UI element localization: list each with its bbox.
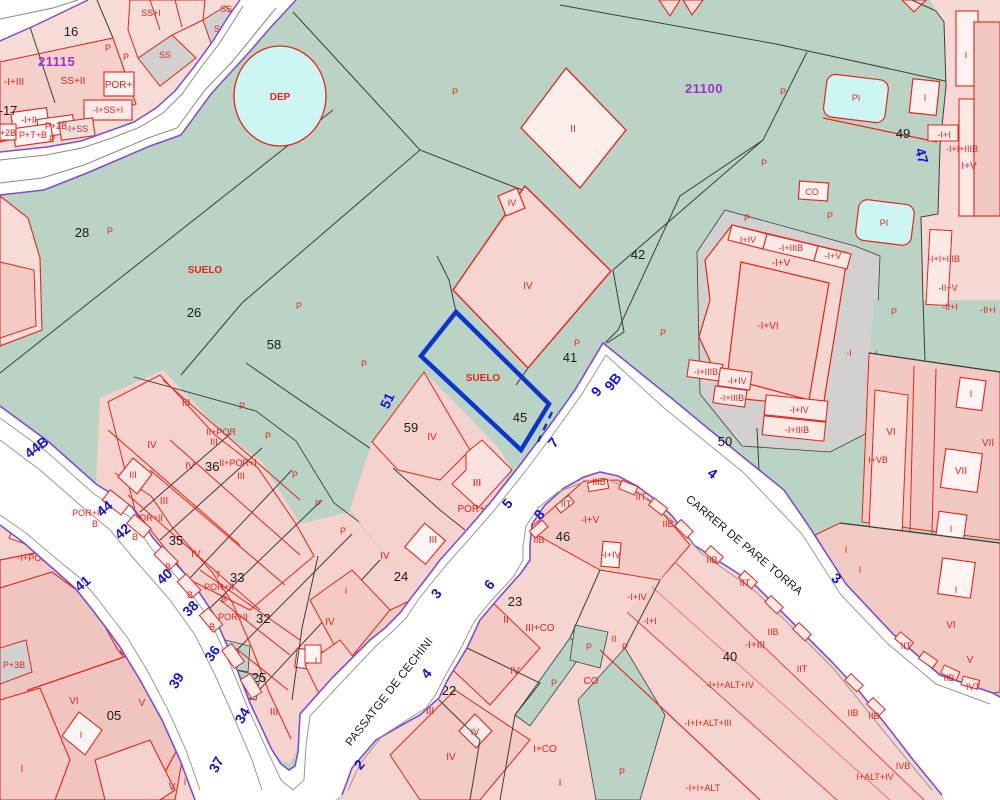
- svg-text:P: P: [315, 499, 321, 509]
- svg-text:III: III: [237, 471, 245, 481]
- svg-text:58: 58: [267, 337, 281, 352]
- svg-text:-I+SS+I: -I+SS+I: [93, 105, 124, 115]
- svg-text:I: I: [345, 586, 348, 596]
- svg-text:I: I: [845, 545, 848, 555]
- svg-text:P: P: [891, 307, 897, 317]
- svg-text:III: III: [473, 478, 481, 489]
- svg-text:VII: VII: [982, 438, 994, 449]
- svg-text:IV: IV: [380, 551, 390, 562]
- svg-text:VI: VI: [946, 620, 955, 631]
- svg-text:SS+I: SS+I: [141, 8, 161, 18]
- svg-text:-I+III: -I+III: [745, 640, 765, 651]
- svg-text:V: V: [139, 698, 146, 709]
- svg-text:IIB: IIB: [533, 535, 544, 545]
- svg-text:II: II: [611, 634, 616, 644]
- svg-text:CO: CO: [805, 187, 819, 197]
- svg-text:P: P: [660, 328, 666, 338]
- svg-text:-I+V: -I+V: [825, 251, 842, 261]
- svg-text:I: I: [924, 93, 927, 103]
- svg-text:P: P: [622, 642, 628, 652]
- svg-text:CO: CO: [584, 676, 599, 687]
- svg-text:24: 24: [394, 569, 408, 584]
- svg-text:IVT: IVT: [966, 682, 981, 692]
- svg-text:P+2B: P+2B: [45, 121, 67, 131]
- svg-text:P: P: [574, 338, 580, 348]
- svg-text:50: 50: [718, 434, 732, 449]
- svg-text:IIB: IIB: [868, 711, 879, 721]
- svg-text:P: P: [107, 226, 113, 236]
- svg-text:PI: PI: [880, 218, 889, 228]
- svg-text:IV: IV: [508, 198, 517, 208]
- svg-text:45: 45: [513, 410, 527, 425]
- svg-text:B: B: [92, 519, 98, 529]
- svg-text:P: P: [296, 301, 302, 311]
- svg-text:I: I: [950, 524, 953, 534]
- svg-text:P: P: [452, 87, 458, 97]
- svg-text:I+CO: I+CO: [533, 744, 557, 755]
- svg-text:42: 42: [631, 247, 645, 262]
- svg-text:II+POR: II+POR: [206, 427, 236, 437]
- svg-text:-I+I: -I+I: [643, 616, 656, 626]
- svg-text:-I+I+ALT: -I+I+ALT: [686, 783, 721, 793]
- svg-text:IIB: IIB: [943, 673, 954, 683]
- svg-text:IV: IV: [523, 281, 533, 292]
- svg-text:05: 05: [107, 708, 121, 723]
- svg-text:VI: VI: [69, 696, 78, 707]
- svg-text:I: I: [559, 778, 562, 789]
- svg-text:-I+I+ALT+III: -I+I+ALT+III: [684, 718, 731, 728]
- svg-text:-II+I: -II+I: [942, 302, 958, 312]
- svg-text:IV: IV: [185, 461, 195, 472]
- svg-text:P: P: [780, 87, 786, 97]
- svg-text:-I+IIIB: -I+IIIB: [779, 243, 803, 253]
- svg-text:I+ALT+IV: I+ALT+IV: [856, 772, 893, 782]
- svg-text:IIT: IIT: [740, 578, 751, 588]
- svg-text:I: I: [859, 565, 862, 575]
- svg-text:P: P: [619, 767, 625, 777]
- svg-text:P: P: [105, 43, 111, 53]
- svg-text:IV: IV: [510, 666, 520, 677]
- svg-text:-I+I+IIIB: -I+I+IIIB: [946, 144, 978, 154]
- svg-text:III: III: [429, 535, 437, 546]
- svg-text:IIIB: IIIB: [592, 477, 606, 487]
- svg-text:46: 46: [556, 529, 570, 544]
- svg-text:III: III: [129, 470, 137, 480]
- svg-text:-I+IV: -I+IV: [627, 592, 646, 602]
- svg-text:I: I: [315, 656, 318, 666]
- svg-text:P: P: [586, 642, 592, 652]
- svg-text:IV: IV: [471, 727, 480, 737]
- svg-text:P: P: [340, 526, 346, 536]
- svg-text:IIT: IIT: [901, 641, 912, 651]
- svg-text:IVB: IVB: [896, 761, 911, 771]
- svg-text:IV: IV: [446, 752, 456, 763]
- svg-text:DEP: DEP: [270, 92, 291, 103]
- svg-text:P: P: [827, 211, 833, 221]
- svg-text:II: II: [503, 615, 509, 626]
- svg-text:-17: -17: [0, 103, 17, 118]
- svg-text:SS: SS: [159, 50, 171, 60]
- svg-text:III+CO: III+CO: [525, 623, 554, 634]
- svg-text:SS+II: SS+II: [61, 76, 86, 87]
- svg-text:B: B: [221, 594, 227, 604]
- svg-text:SUELO: SUELO: [188, 265, 223, 276]
- svg-text:V: V: [967, 655, 974, 666]
- svg-text:IV: IV: [147, 440, 157, 451]
- svg-text:I: I: [965, 50, 968, 60]
- svg-text:49: 49: [896, 126, 910, 141]
- svg-text:VI: VI: [886, 427, 895, 438]
- svg-text:I: I: [970, 389, 973, 399]
- svg-text:IV: IV: [325, 617, 335, 628]
- svg-text:59: 59: [404, 420, 418, 435]
- svg-text:IIT: IIT: [636, 492, 647, 502]
- svg-text:36: 36: [205, 459, 219, 474]
- svg-text:35: 35: [169, 533, 183, 548]
- svg-text:-I+III: -I+III: [4, 77, 24, 88]
- svg-text:-I+IV: -I+IV: [727, 376, 746, 386]
- svg-text:II+POR+I: II+POR+I: [219, 458, 257, 468]
- svg-text:I+V: I+V: [961, 161, 977, 172]
- svg-text:POR+I: POR+I: [105, 80, 135, 91]
- svg-text:-I+IIIB: -I+IIIB: [694, 367, 718, 377]
- svg-text:23: 23: [508, 594, 522, 609]
- svg-text:I: I: [21, 764, 24, 775]
- svg-text:-I+IIIB: -I+IIIB: [720, 393, 744, 403]
- svg-text:IIB: IIB: [847, 708, 858, 718]
- svg-text:III: III: [160, 496, 168, 507]
- svg-text:P: P: [265, 431, 271, 441]
- svg-text:33: 33: [230, 570, 244, 585]
- svg-text:B: B: [132, 532, 138, 542]
- svg-text:-I+V: -I+V: [581, 515, 600, 526]
- svg-text:IIB: IIB: [706, 555, 717, 565]
- svg-text:T: T: [215, 570, 221, 580]
- svg-text:B: B: [209, 622, 215, 632]
- svg-text:40: 40: [723, 649, 737, 664]
- svg-text:-II+V: -II+V: [938, 283, 957, 293]
- svg-text:P: P: [761, 158, 767, 168]
- svg-text:SUELO: SUELO: [466, 373, 501, 384]
- svg-text:28: 28: [75, 225, 89, 240]
- svg-text:26: 26: [187, 305, 201, 320]
- svg-text:41: 41: [563, 350, 577, 365]
- svg-text:-I: -I: [846, 348, 852, 358]
- svg-text:-II+I: -II+I: [980, 305, 996, 315]
- svg-text:P: P: [239, 401, 245, 411]
- svg-text:IV: IV: [191, 549, 201, 560]
- svg-text:IIB: IIB: [767, 627, 778, 637]
- svg-text:32: 32: [256, 611, 270, 626]
- svg-text:-I+IV: -I+IV: [789, 405, 808, 415]
- svg-text:21115: 21115: [38, 54, 75, 69]
- svg-text:IIT: IIT: [561, 499, 572, 509]
- svg-text:P+3B: P+3B: [3, 660, 25, 670]
- svg-text:I+VB: I+VB: [868, 455, 888, 465]
- svg-text:P: P: [551, 678, 557, 688]
- svg-text:-I+II: -I+II: [21, 115, 37, 125]
- svg-text:P: P: [744, 213, 750, 223]
- svg-text:III: III: [270, 707, 278, 718]
- svg-text:V: V: [169, 782, 176, 793]
- svg-text:16: 16: [64, 24, 78, 39]
- svg-text:PI: PI: [852, 93, 861, 103]
- svg-text:21100: 21100: [685, 81, 723, 96]
- svg-text:P: P: [49, 134, 55, 144]
- svg-text:-I+SS: -I+SS: [66, 124, 89, 134]
- svg-text:-I+IV: -I+IV: [601, 550, 620, 560]
- svg-text:P+T+B: P+T+B: [19, 130, 47, 140]
- svg-text:II: II: [570, 124, 576, 135]
- svg-text:IV: IV: [427, 432, 437, 443]
- svg-text:I: I: [955, 585, 958, 595]
- svg-text:-I+I+ALT+IV: -I+I+ALT+IV: [706, 680, 754, 690]
- svg-text:POR+II: POR+II: [218, 612, 248, 622]
- svg-text:-I+I+IIIB: -I+I+IIIB: [928, 254, 960, 264]
- svg-text:I+IV: I+IV: [740, 235, 756, 245]
- svg-text:III: III: [210, 437, 218, 447]
- svg-text:-I+VI: -I+VI: [757, 321, 778, 332]
- svg-text:IIT: IIT: [797, 664, 808, 674]
- svg-text:P: P: [361, 359, 367, 369]
- svg-text:P: P: [292, 470, 298, 480]
- svg-text:IIB: IIB: [662, 519, 673, 529]
- svg-text:-I+IIIB: -I+IIIB: [785, 425, 809, 435]
- svg-text:P: P: [123, 52, 129, 62]
- svg-text:-I+I: -I+I: [937, 130, 950, 140]
- svg-text:VII: VII: [955, 466, 967, 477]
- svg-text:-I+V: -I+V: [772, 258, 791, 269]
- svg-text:III: III: [182, 398, 190, 409]
- svg-text:+2B: +2B: [0, 128, 16, 138]
- svg-text:I: I: [80, 730, 83, 740]
